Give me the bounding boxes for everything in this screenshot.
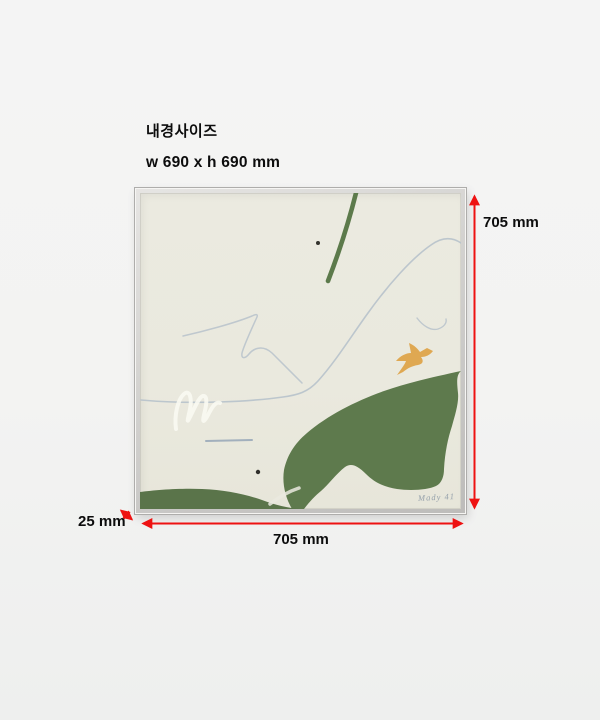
artwork-canvas: Mady 41 xyxy=(140,193,461,509)
dash-line xyxy=(206,440,252,441)
dark-dot-bottom xyxy=(256,470,260,474)
small-wave-curve xyxy=(417,318,446,329)
artist-signature: Mady 41 xyxy=(418,491,455,503)
dark-dot-top xyxy=(316,241,320,245)
width-dimension-label: 705 mm xyxy=(273,531,329,548)
inner-size-block: 내경사이즈 w 690 x h 690 mm xyxy=(146,120,280,172)
inner-size-title: 내경사이즈 xyxy=(146,120,280,141)
depth-dimension-label: 25 mm xyxy=(78,513,126,530)
bird-icon xyxy=(396,343,433,375)
artwork-frame: Mady 41 xyxy=(135,188,466,514)
hook-curve xyxy=(183,315,302,383)
white-squiggle xyxy=(175,393,220,429)
long-curve xyxy=(141,239,461,403)
height-dimension-label: 705 mm xyxy=(483,214,539,231)
green-stroke-top xyxy=(328,193,356,281)
abstract-painting xyxy=(140,193,461,509)
green-shape-main xyxy=(283,371,461,509)
inner-size-value: w 690 x h 690 mm xyxy=(146,154,280,172)
product-dimension-image: 내경사이즈 w 690 x h 690 mm xyxy=(0,0,600,720)
